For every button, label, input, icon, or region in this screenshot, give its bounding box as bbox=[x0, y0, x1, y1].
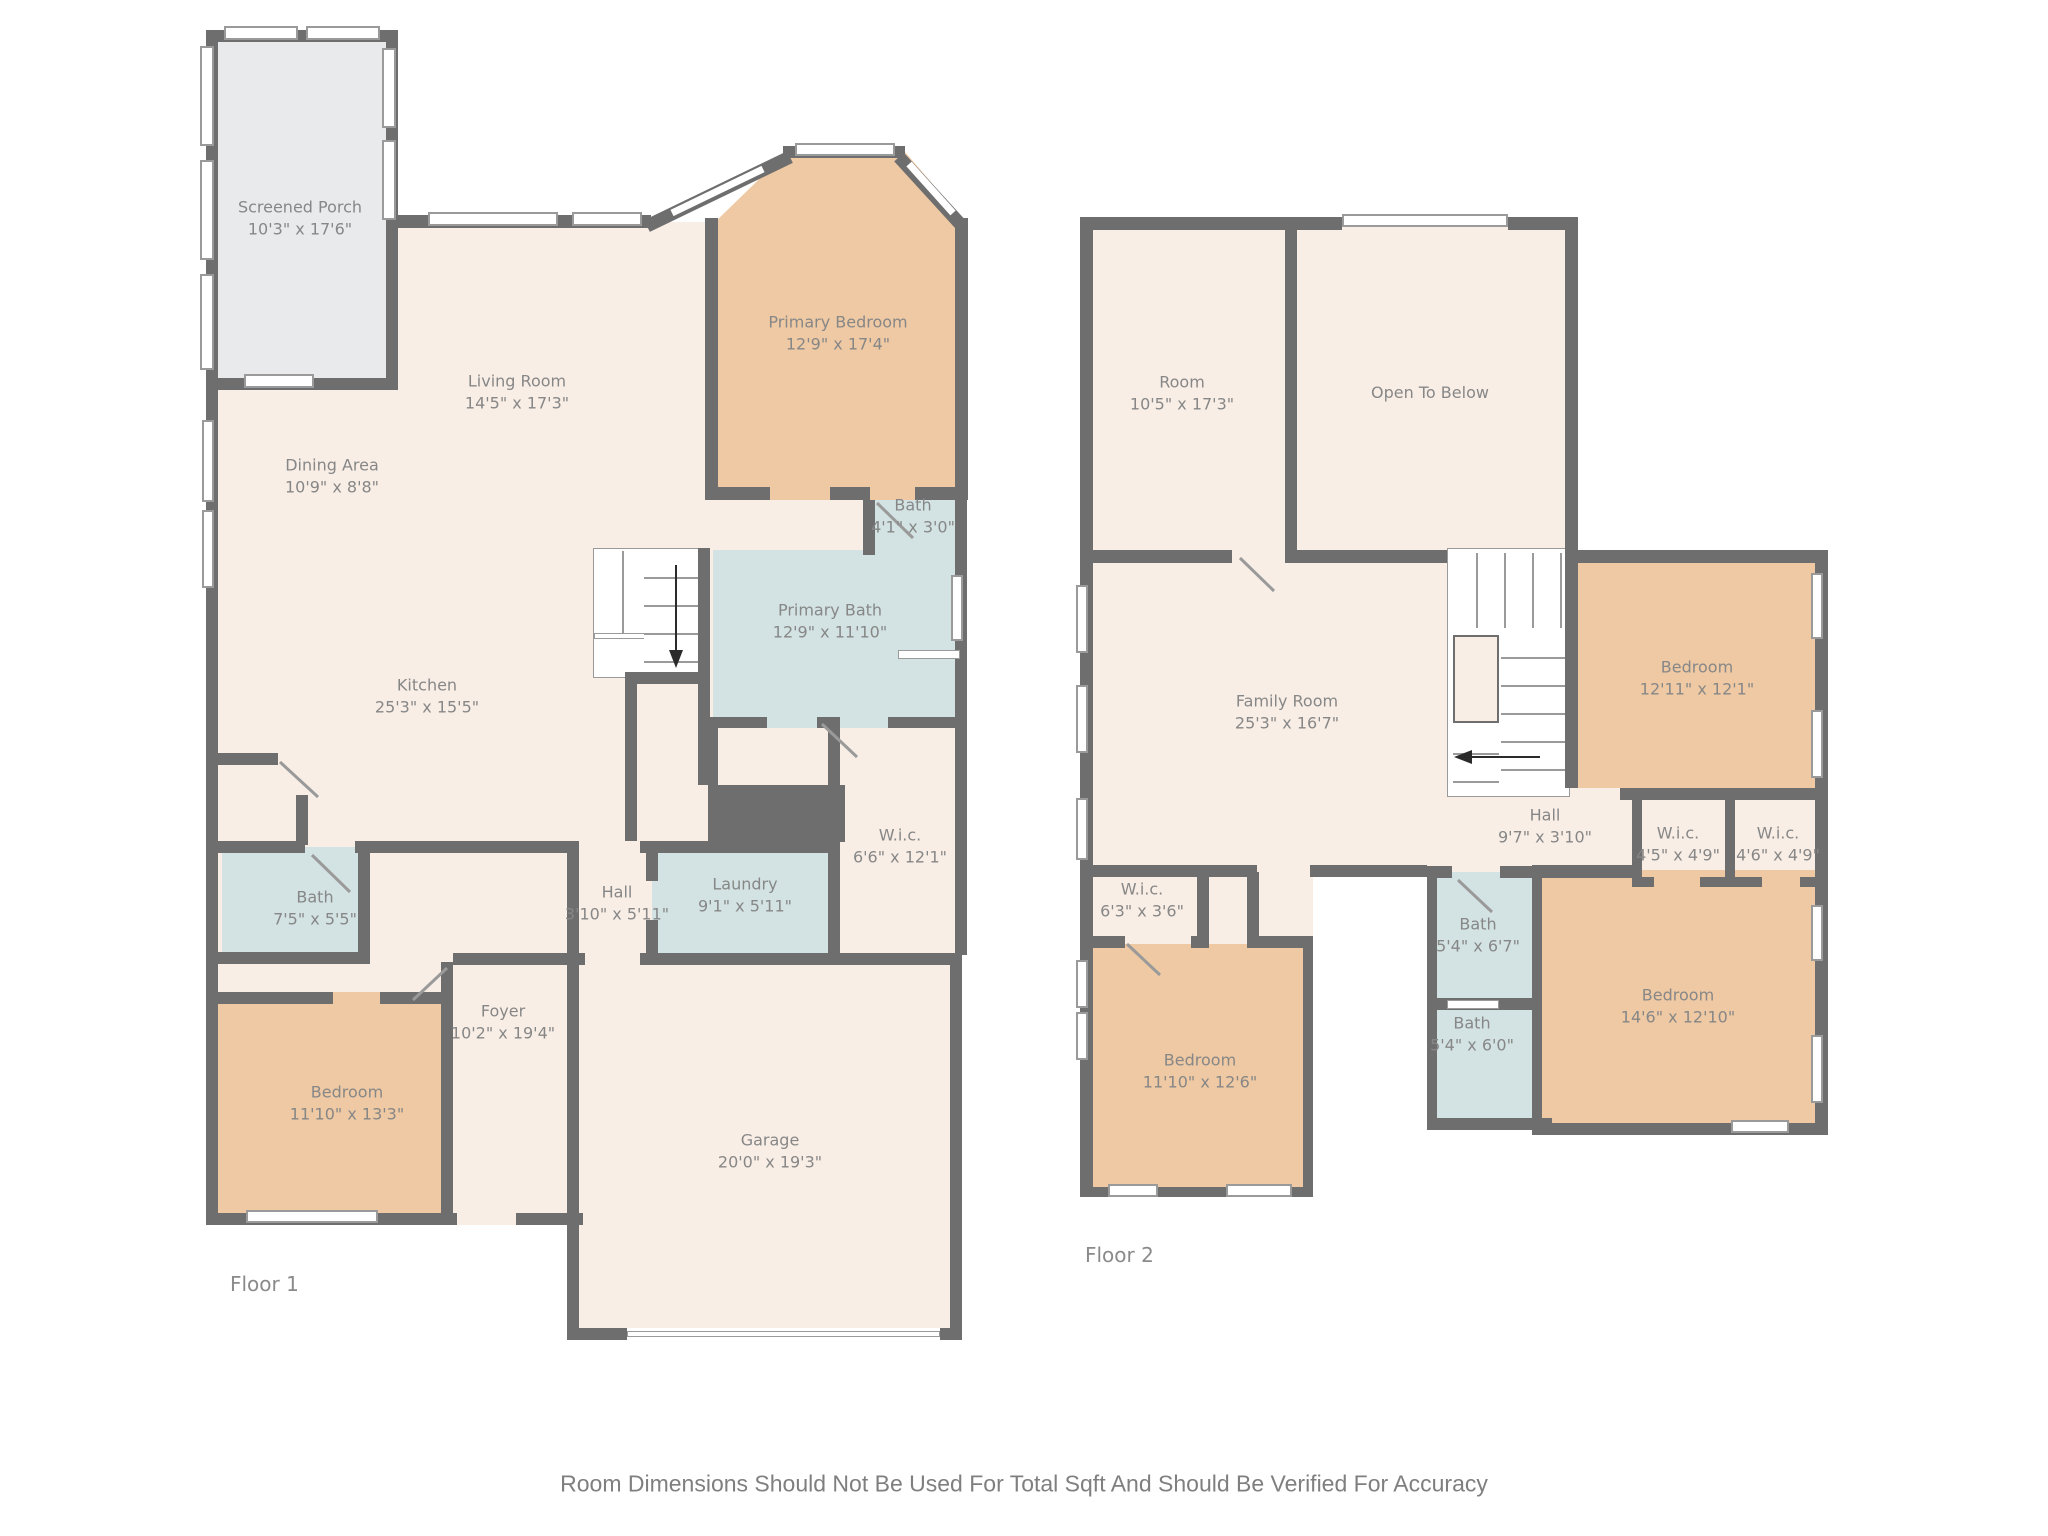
window bbox=[795, 143, 895, 156]
wall bbox=[625, 672, 710, 684]
stair-treads bbox=[1453, 727, 1499, 794]
room-label-kitchen: Kitchen25'3" x 15'5" bbox=[375, 674, 479, 717]
room-dims: 14'6" x 12'10" bbox=[1621, 1006, 1735, 1028]
disclaimer-text: Room Dimensions Should Not Be Used For T… bbox=[560, 1471, 1488, 1498]
room-dims: 10'5" x 17'3" bbox=[1130, 393, 1234, 415]
stair-treads bbox=[1501, 631, 1569, 794]
room-dims: 6'3" x 3'6" bbox=[1100, 900, 1184, 922]
wall bbox=[296, 795, 308, 845]
room-dims: 12'9" x 17'4" bbox=[768, 333, 907, 355]
wall bbox=[1700, 877, 1762, 887]
room-name: W.i.c. bbox=[853, 824, 947, 846]
wall bbox=[1578, 550, 1828, 563]
wall bbox=[355, 841, 577, 853]
wall bbox=[567, 1328, 627, 1340]
room-dims: 12'9" x 11'10" bbox=[773, 621, 887, 643]
wall bbox=[1080, 550, 1232, 563]
room-dims: 10'2" x 19'4" bbox=[451, 1022, 555, 1044]
room-label-room: Room10'5" x 17'3" bbox=[1130, 371, 1234, 414]
room-dims: 11'10" x 13'3" bbox=[290, 1103, 404, 1125]
room-label-primary-bath: Primary Bath12'9" x 11'10" bbox=[773, 599, 887, 642]
floor2-caption: Floor 2 bbox=[1085, 1243, 1154, 1267]
room-dims: 10'3" x 17'6" bbox=[238, 218, 362, 240]
room-name: Primary Bath bbox=[773, 599, 887, 621]
stair-treads bbox=[1450, 553, 1569, 628]
wall bbox=[206, 378, 218, 1225]
wall bbox=[358, 841, 370, 964]
window bbox=[1811, 1035, 1823, 1103]
wall bbox=[1285, 217, 1297, 563]
room-label-screened-porch: Screened Porch10'3" x 17'6" bbox=[238, 196, 362, 239]
room-dims: 4'1" x 3'0" bbox=[871, 516, 955, 538]
wall bbox=[1080, 217, 1342, 230]
room-label-bedroom-lower-left: Bedroom11'10" x 12'6" bbox=[1143, 1049, 1257, 1092]
wall bbox=[1290, 550, 1447, 563]
wall bbox=[218, 841, 305, 853]
wall bbox=[1565, 550, 1578, 788]
window bbox=[951, 575, 963, 641]
window bbox=[1076, 1012, 1088, 1060]
window bbox=[1342, 214, 1508, 227]
room-name: Bath bbox=[871, 494, 955, 516]
wall bbox=[940, 1328, 962, 1340]
stair-ledge bbox=[594, 633, 648, 639]
room-label-open-to-below: Open To Below bbox=[1371, 382, 1489, 404]
window bbox=[572, 212, 642, 226]
room-label-wic-63: W.i.c.6'3" x 3'6" bbox=[1100, 878, 1184, 921]
room-name: Hall bbox=[1498, 804, 1592, 826]
room-dims: 11'10" x 12'6" bbox=[1143, 1071, 1257, 1093]
garage-door bbox=[627, 1331, 940, 1337]
wall bbox=[1197, 872, 1209, 948]
wall bbox=[1310, 865, 1427, 877]
utility-block bbox=[708, 785, 845, 842]
room-label-wic-floor1: W.i.c.6'6" x 12'1" bbox=[853, 824, 947, 867]
room-dims: 4'5" x 4'9" bbox=[1636, 844, 1720, 866]
room-name: Bedroom bbox=[1143, 1049, 1257, 1071]
room-dims: 9'7" x 3'10" bbox=[1498, 826, 1592, 848]
window bbox=[382, 48, 396, 128]
wall bbox=[1532, 865, 1542, 1123]
window bbox=[200, 274, 214, 370]
wall bbox=[625, 672, 637, 841]
room-name: Screened Porch bbox=[238, 196, 362, 218]
room-label-family-room: Family Room25'3" x 16'7" bbox=[1235, 690, 1339, 733]
window bbox=[224, 26, 298, 40]
room-dims: 7'5" x 5'5" bbox=[273, 908, 357, 930]
window bbox=[244, 374, 314, 388]
room-name: Bedroom bbox=[1640, 656, 1754, 678]
room-dims: 6'6" x 12'1" bbox=[853, 846, 947, 868]
room-name: Kitchen bbox=[375, 674, 479, 696]
wall bbox=[950, 953, 962, 1340]
wall bbox=[888, 717, 967, 728]
room-label-wic-45: W.i.c.4'5" x 4'9" bbox=[1636, 822, 1720, 865]
room-name: Foyer bbox=[451, 1000, 555, 1022]
window bbox=[202, 420, 214, 502]
window bbox=[246, 1210, 378, 1223]
wall bbox=[640, 953, 962, 965]
wall bbox=[706, 717, 767, 728]
room-name: Bath bbox=[1436, 913, 1520, 935]
room-name: Room bbox=[1130, 371, 1234, 393]
wall bbox=[1080, 936, 1125, 948]
window bbox=[1076, 960, 1088, 1008]
room-label-primary-bedroom: Primary Bedroom12'9" x 17'4" bbox=[768, 311, 907, 354]
room-name: Laundry bbox=[698, 873, 792, 895]
room-label-bath-60: Bath5'4" x 6'0" bbox=[1430, 1012, 1514, 1055]
room-label-hall-floor1: Hall3'10" x 5'11" bbox=[565, 881, 669, 924]
room-dims: 3'10" x 5'11" bbox=[565, 903, 669, 925]
room-dims: 25'3" x 16'7" bbox=[1235, 712, 1339, 734]
room-name: Living Room bbox=[465, 370, 569, 392]
room-dims: 20'0" x 19'3" bbox=[718, 1151, 822, 1173]
window bbox=[1108, 1184, 1158, 1197]
room-name: Bedroom bbox=[1621, 984, 1735, 1006]
window bbox=[1811, 905, 1823, 961]
room-label-bath-67: Bath5'4" x 6'7" bbox=[1436, 913, 1520, 956]
wall bbox=[640, 841, 840, 853]
wall bbox=[1800, 877, 1828, 887]
wall bbox=[830, 487, 870, 500]
wall bbox=[1303, 936, 1313, 1187]
wall bbox=[955, 218, 968, 500]
window bbox=[1731, 1120, 1789, 1133]
room-dims: 14'5" x 17'3" bbox=[465, 392, 569, 414]
room-name: W.i.c. bbox=[1636, 822, 1720, 844]
staircase-floor1 bbox=[593, 548, 710, 678]
window bbox=[428, 212, 558, 226]
room-dims: 5'4" x 6'7" bbox=[1436, 935, 1520, 957]
room-label-dining-area: Dining Area10'9" x 8'8" bbox=[285, 454, 379, 497]
room-label-wic-46: W.i.c.4'6" x 4'9" bbox=[1736, 822, 1820, 865]
room-label-bath-left: Bath7'5" x 5'5" bbox=[273, 886, 357, 929]
wall bbox=[705, 218, 718, 500]
room-name: Bath bbox=[273, 886, 357, 908]
window bbox=[200, 46, 214, 146]
stair-landing bbox=[1453, 635, 1499, 723]
room-name: Bedroom bbox=[290, 1081, 404, 1103]
wall bbox=[453, 953, 585, 965]
window bbox=[202, 510, 214, 588]
room-label-foyer: Foyer10'2" x 19'4" bbox=[451, 1000, 555, 1043]
wall bbox=[380, 992, 453, 1004]
floor-plan: Screened Porch10'3" x 17'6" Living Room1… bbox=[0, 0, 2048, 1536]
window bbox=[1076, 585, 1088, 653]
door-opening bbox=[1447, 1000, 1499, 1009]
floor-fill-foyer bbox=[441, 955, 583, 1225]
wall bbox=[1565, 217, 1578, 563]
floor1-caption: Floor 1 bbox=[230, 1272, 299, 1296]
room-dims: 12'11" x 12'1" bbox=[1640, 678, 1754, 700]
window bbox=[306, 26, 380, 40]
window bbox=[200, 160, 214, 260]
room-label-bedroom-upper-right: Bedroom12'11" x 12'1" bbox=[1640, 656, 1754, 699]
room-label-garage: Garage20'0" x 19'3" bbox=[718, 1129, 822, 1172]
room-name: Garage bbox=[718, 1129, 822, 1151]
bath-counter bbox=[898, 650, 960, 659]
room-dims: 10'9" x 8'8" bbox=[285, 476, 379, 498]
wall bbox=[218, 952, 370, 964]
wall bbox=[218, 992, 333, 1004]
stair-treads bbox=[644, 551, 699, 675]
wall bbox=[1620, 788, 1828, 800]
room-label-bedroom-floor1: Bedroom11'10" x 13'3" bbox=[290, 1081, 404, 1124]
room-dims: 5'4" x 6'0" bbox=[1430, 1034, 1514, 1056]
wall bbox=[1725, 788, 1735, 887]
wall bbox=[1080, 865, 1257, 877]
room-name: W.i.c. bbox=[1100, 878, 1184, 900]
room-name: Family Room bbox=[1235, 690, 1339, 712]
wall bbox=[646, 841, 658, 881]
wall bbox=[705, 487, 770, 500]
room-dims: 9'1" x 5'11" bbox=[698, 895, 792, 917]
room-name: Bath bbox=[1430, 1012, 1514, 1034]
room-label-laundry: Laundry9'1" x 5'11" bbox=[698, 873, 792, 916]
room-label-hall-floor2: Hall9'7" x 3'10" bbox=[1498, 804, 1592, 847]
wall bbox=[1500, 866, 1632, 878]
window bbox=[1076, 685, 1088, 753]
window bbox=[382, 140, 396, 220]
staircase-floor2 bbox=[1447, 548, 1570, 797]
stair-treads bbox=[596, 551, 644, 633]
wall bbox=[206, 753, 278, 765]
window bbox=[1226, 1184, 1292, 1197]
wall bbox=[1632, 877, 1654, 887]
wall bbox=[646, 920, 658, 955]
window bbox=[1076, 798, 1088, 860]
window bbox=[1811, 710, 1823, 778]
room-dims: 25'3" x 15'5" bbox=[375, 696, 479, 718]
wall bbox=[817, 717, 833, 728]
room-name: Open To Below bbox=[1371, 382, 1489, 404]
room-label-living-room: Living Room14'5" x 17'3" bbox=[465, 370, 569, 413]
room-name: Primary Bedroom bbox=[768, 311, 907, 333]
room-label-bath-small: Bath4'1" x 3'0" bbox=[871, 494, 955, 537]
room-name: Dining Area bbox=[285, 454, 379, 476]
room-name: Hall bbox=[565, 881, 669, 903]
wall bbox=[706, 728, 718, 785]
room-label-bedroom-lower-right: Bedroom14'6" x 12'10" bbox=[1621, 984, 1735, 1027]
room-name: W.i.c. bbox=[1736, 822, 1820, 844]
room-dims: 4'6" x 4'9" bbox=[1736, 844, 1820, 866]
window bbox=[1811, 573, 1823, 639]
